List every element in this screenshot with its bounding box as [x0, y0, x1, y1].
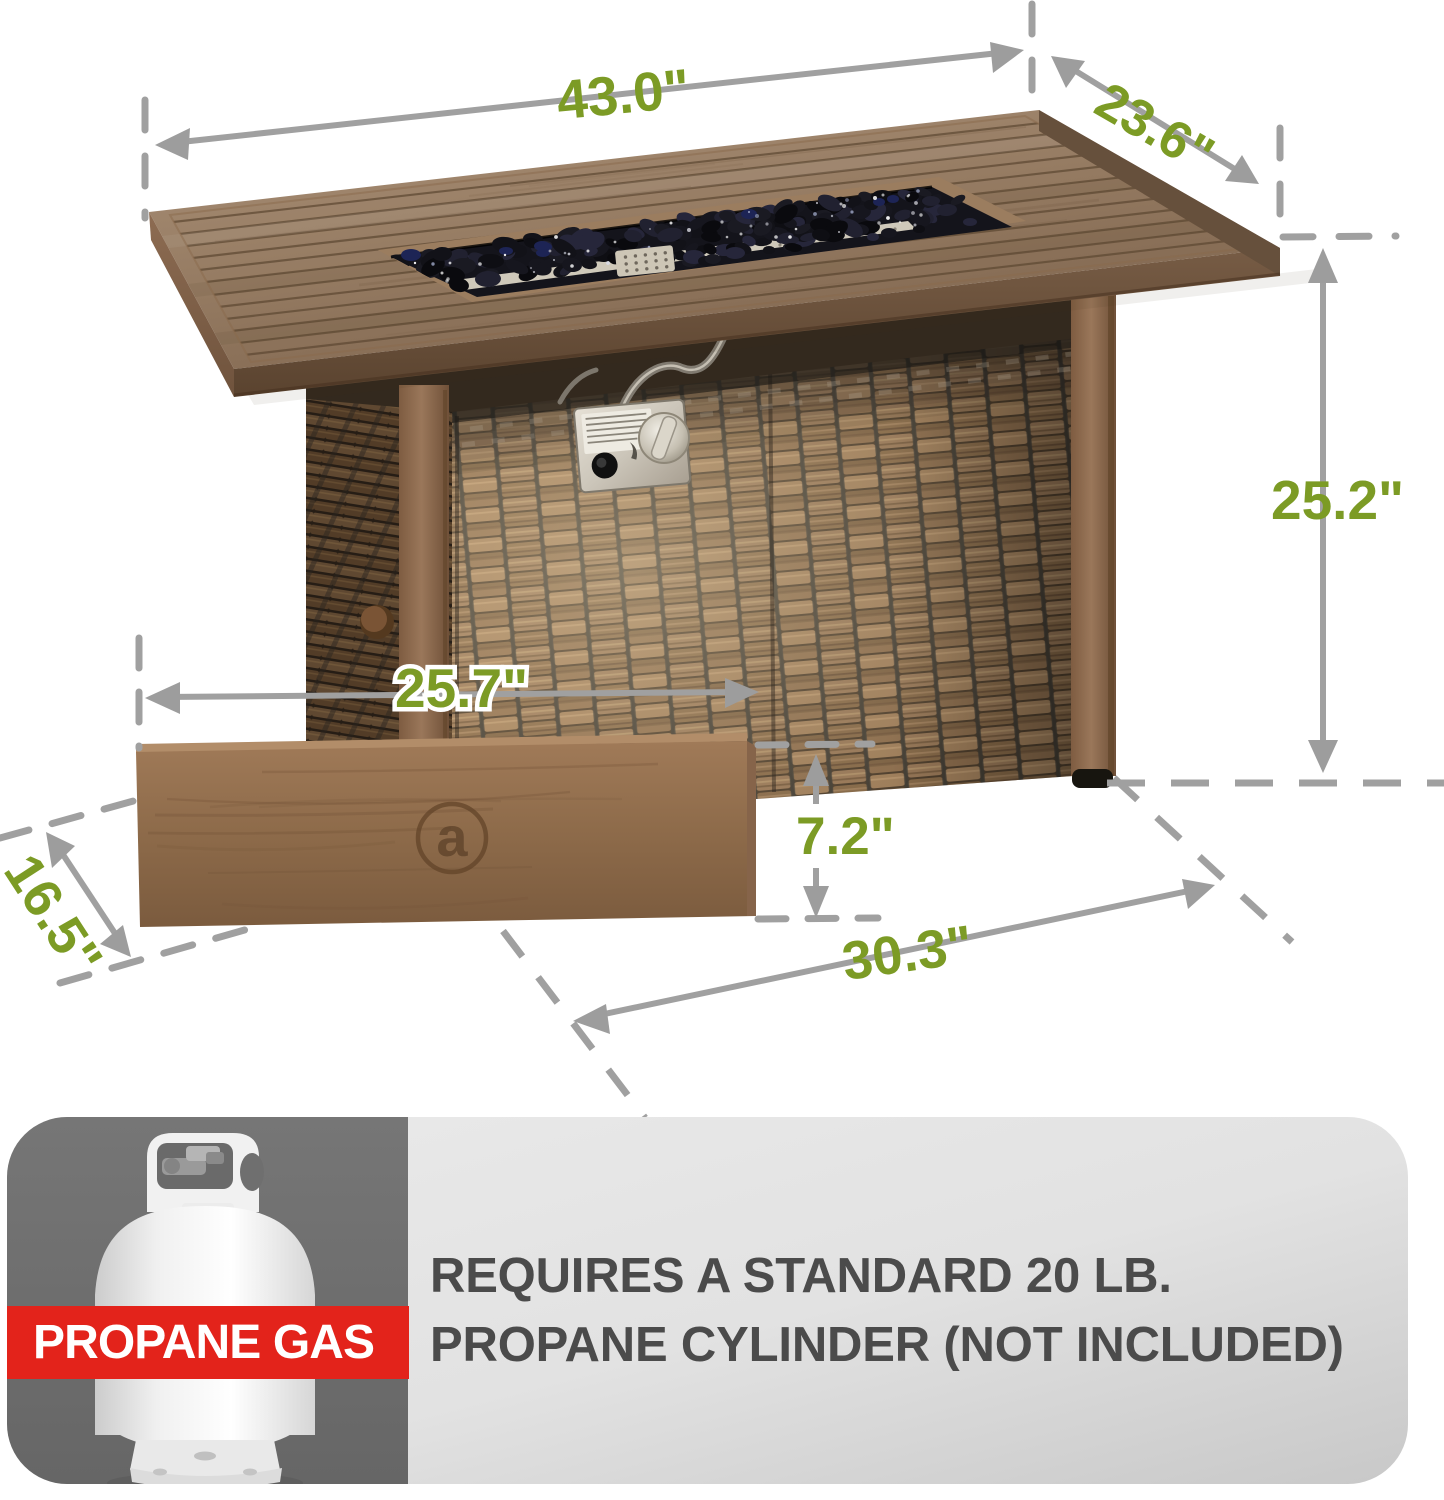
svg-text:43.0": 43.0"	[554, 57, 692, 131]
svg-text:a: a	[436, 805, 468, 868]
svg-text:25.7": 25.7"	[395, 657, 528, 719]
svg-text:REQUIRES A STANDARD 20 LB.: REQUIRES A STANDARD 20 LB.	[430, 1249, 1172, 1303]
svg-text:PROPANE GAS: PROPANE GAS	[33, 1316, 375, 1369]
svg-text:7.2": 7.2"	[796, 807, 895, 866]
svg-text:25.2": 25.2"	[1271, 469, 1404, 531]
svg-text:PROPANE CYLINDER (NOT INCLUDED: PROPANE CYLINDER (NOT INCLUDED)	[430, 1318, 1344, 1372]
